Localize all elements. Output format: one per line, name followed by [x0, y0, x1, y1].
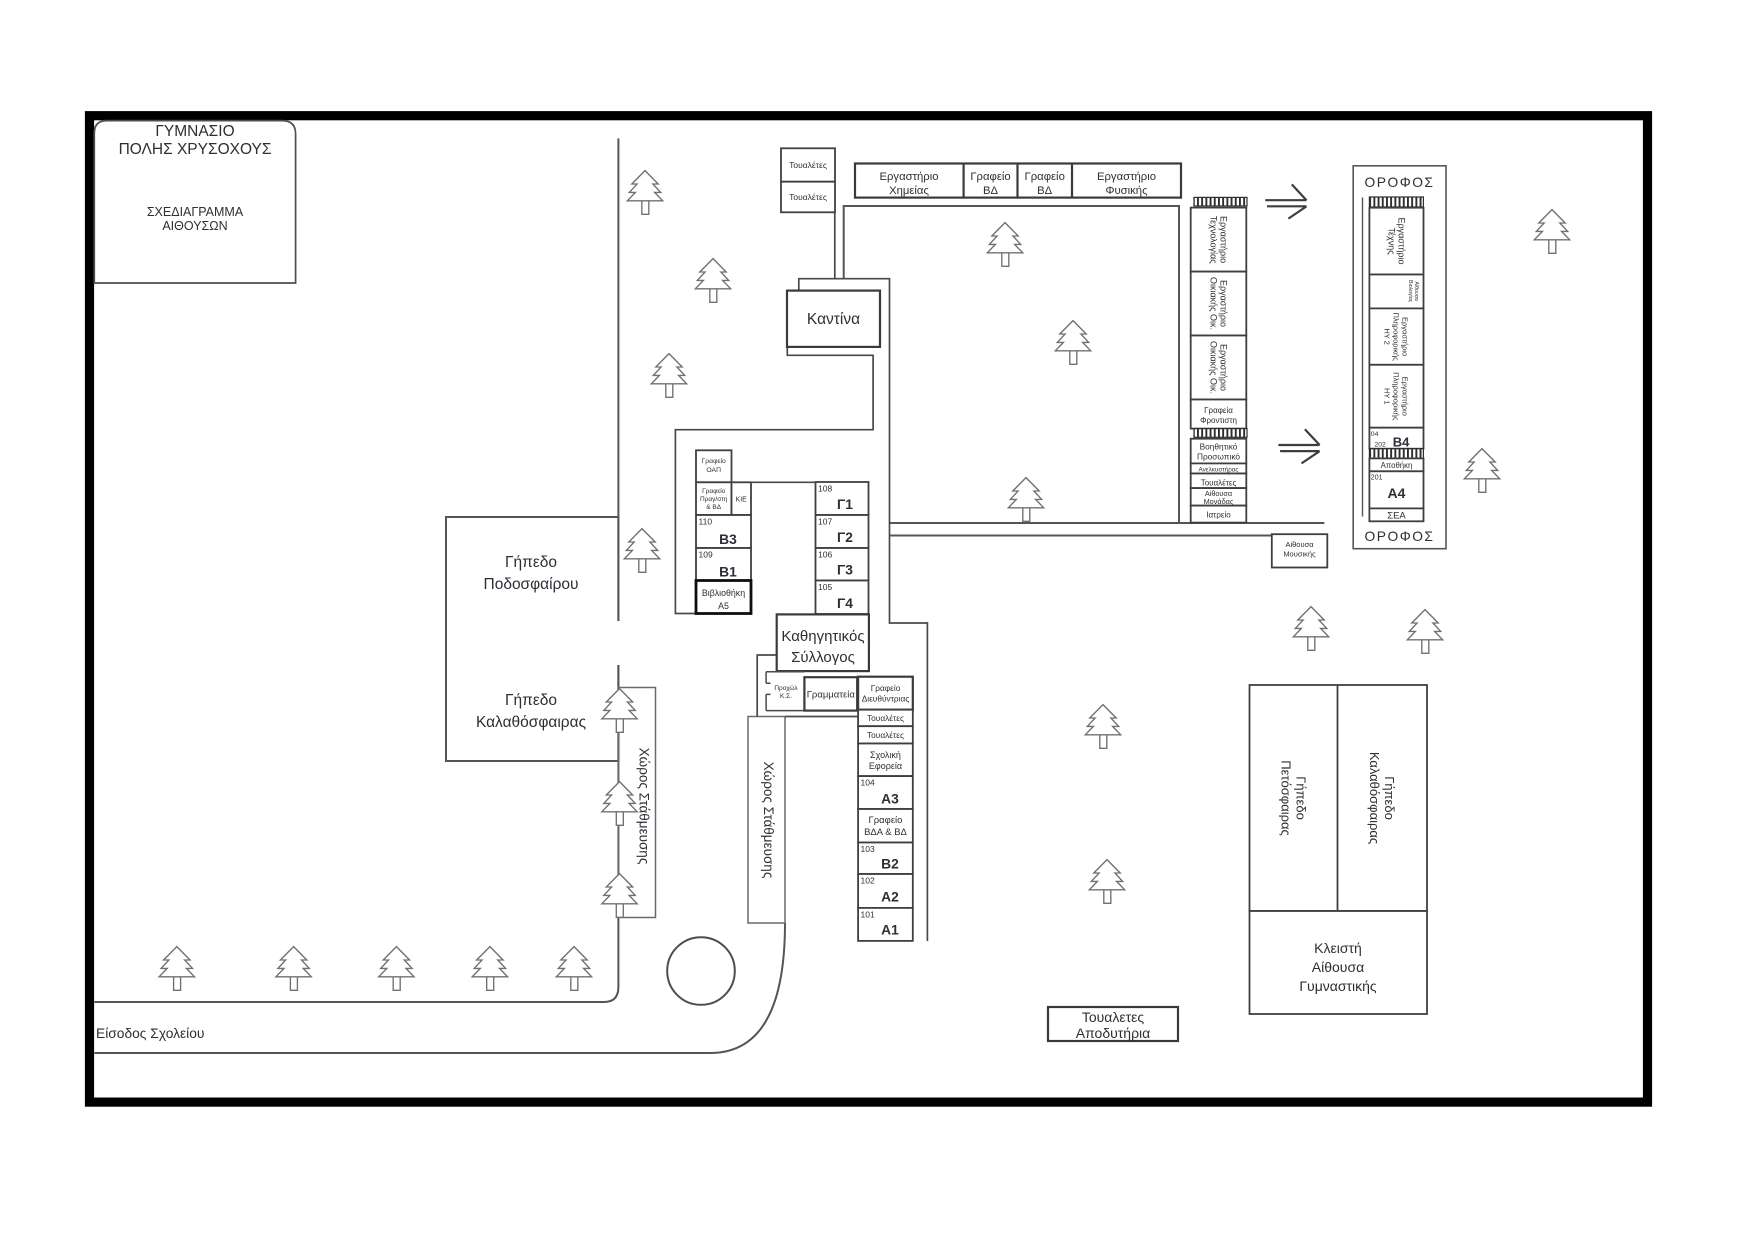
- svg-text:Καλαθόσφαιρας: Καλαθόσφαιρας: [476, 714, 586, 731]
- svg-text:Γραφείο: Γραφείο: [871, 683, 901, 693]
- svg-text:108: 108: [818, 484, 832, 494]
- svg-text:Β1: Β1: [719, 565, 737, 580]
- svg-text:Γραφείο: Γραφείο: [970, 171, 1010, 183]
- svg-text:Αίθουσα: Αίθουσα: [1285, 540, 1314, 549]
- svg-text:ΣΧΕΔΙΑΓΡΑΜΜΑ: ΣΧΕΔΙΑΓΡΑΜΜΑ: [147, 205, 244, 219]
- svg-text:Τουαλετες: Τουαλετες: [1082, 1009, 1145, 1025]
- svg-text:Σχολική: Σχολική: [870, 750, 901, 760]
- svg-text:ΣΕΑ: ΣΕΑ: [1387, 511, 1406, 522]
- svg-text:104: 104: [861, 778, 875, 788]
- svg-text:Γυμναστικής: Γυμναστικής: [1299, 978, 1377, 994]
- svg-text:105: 105: [818, 582, 832, 592]
- svg-text:Γ3: Γ3: [837, 563, 853, 578]
- svg-text:Μονάδας: Μονάδας: [1204, 497, 1234, 506]
- svg-text:ΟΡΟΦΟΣ: ΟΡΟΦΟΣ: [1365, 529, 1435, 544]
- svg-text:Γραμματεία: Γραμματεία: [807, 690, 856, 701]
- svg-text:102: 102: [861, 876, 875, 886]
- svg-text:Χώρος Στάθμευσης: Χώρος Στάθμευσης: [761, 762, 776, 879]
- svg-text:Μουσικής: Μουσικής: [1283, 550, 1316, 559]
- svg-text:Χημείας: Χημείας: [889, 185, 929, 197]
- svg-text:Εφορεία: Εφορεία: [869, 761, 902, 771]
- svg-text:Καντίνα: Καντίνα: [807, 311, 860, 328]
- svg-text:Διευθύντριας: Διευθύντριας: [862, 694, 910, 704]
- svg-text:Φροντιστη: Φροντιστη: [1200, 416, 1237, 425]
- svg-text:110: 110: [699, 517, 713, 527]
- svg-text:Γραφείο: Γραφείο: [869, 815, 903, 826]
- svg-text:ΕργαστήριοΟικιακής Οικ.: ΕργαστήριοΟικιακής Οικ.: [1208, 277, 1228, 330]
- svg-text:Ιατρείο: Ιατρείο: [1206, 511, 1231, 520]
- svg-text:04: 04: [1371, 431, 1379, 438]
- svg-text:ΟΑΠ: ΟΑΠ: [706, 467, 721, 474]
- svg-text:Α3: Α3: [881, 792, 899, 807]
- svg-text:Α2: Α2: [881, 890, 899, 905]
- svg-text:ΠΟΛΗΣ ΧΡΥΣΟΧΟΥΣ: ΠΟΛΗΣ ΧΡΥΣΟΧΟΥΣ: [119, 141, 272, 158]
- svg-text:Γραφείο: Γραφείο: [702, 487, 726, 495]
- svg-text:Τουαλέτες: Τουαλέτες: [867, 713, 904, 723]
- svg-text:Τουαλέτες: Τουαλέτες: [789, 192, 827, 202]
- svg-text:ΚΙΕ: ΚΙΕ: [736, 497, 748, 504]
- svg-text:Σύλλογος: Σύλλογος: [791, 649, 855, 666]
- svg-text:Κ.Σ.: Κ.Σ.: [780, 693, 792, 700]
- svg-text:Γήπεδο: Γήπεδο: [505, 692, 557, 709]
- svg-text:ΒΔ: ΒΔ: [983, 185, 999, 197]
- svg-text:ΒΔ: ΒΔ: [1037, 185, 1053, 197]
- svg-text:ΒΔΑ & ΒΔ: ΒΔΑ & ΒΔ: [864, 827, 907, 838]
- svg-text:Ανελκυστήρας: Ανελκυστήρας: [1199, 467, 1239, 474]
- svg-text:Είσοδος Σχολείου: Είσοδος Σχολείου: [96, 1026, 204, 1041]
- svg-text:ΟΡΟΦΟΣ: ΟΡΟΦΟΣ: [1365, 175, 1435, 190]
- svg-text:109: 109: [699, 550, 713, 560]
- svg-text:Τουαλέτες: Τουαλέτες: [867, 730, 904, 740]
- svg-text:Αποθήκη: Αποθήκη: [1381, 461, 1413, 470]
- svg-text:Γ4: Γ4: [837, 596, 853, 611]
- svg-text:Προχώλ: Προχώλ: [774, 684, 798, 692]
- svg-text:Α5: Α5: [718, 601, 729, 611]
- svg-text:106: 106: [818, 550, 832, 560]
- svg-text:Εργαστήριο: Εργαστήριο: [879, 171, 938, 183]
- svg-text:Αίθουσα: Αίθουσα: [1312, 959, 1364, 975]
- svg-text:Γ1: Γ1: [837, 497, 853, 512]
- svg-text:Γραφείο: Γραφείο: [702, 457, 726, 465]
- svg-text:ΕργαστήριοΤεχνολογίας: ΕργαστήριοΤεχνολογίας: [1208, 216, 1228, 265]
- svg-text:Γήπεδο: Γήπεδο: [505, 554, 557, 571]
- svg-text:Βοηθητικό: Βοηθητικό: [1200, 442, 1238, 452]
- svg-text:ΑΙΘΟΥΣΩΝ: ΑΙΘΟΥΣΩΝ: [162, 219, 227, 233]
- svg-text:Κλειστή: Κλειστή: [1314, 940, 1362, 956]
- svg-text:Πραγ/στη: Πραγ/στη: [700, 496, 728, 503]
- svg-text:107: 107: [818, 517, 832, 527]
- svg-text:Τουαλέτες: Τουαλέτες: [789, 160, 827, 170]
- svg-text:Βιβλιοθήκη: Βιβλιοθήκη: [702, 588, 745, 598]
- svg-text:Τουαλέτες: Τουαλέτες: [1201, 479, 1237, 488]
- svg-text:103: 103: [861, 844, 875, 854]
- svg-text:Αποδυτήρια: Αποδυτήρια: [1076, 1025, 1151, 1041]
- svg-text:Ποδοσφαίρου: Ποδοσφαίρου: [484, 576, 579, 593]
- svg-text:Β4: Β4: [1393, 435, 1410, 450]
- svg-text:Γραφείο: Γραφείο: [1025, 171, 1065, 183]
- svg-text:Γραφεία: Γραφεία: [1204, 406, 1233, 415]
- svg-text:Α1: Α1: [881, 923, 899, 938]
- svg-text:Γ2: Γ2: [837, 530, 853, 545]
- svg-text:Φυσικής: Φυσικής: [1105, 185, 1148, 197]
- svg-text:ΓΥΜΝΑΣΙΟ: ΓΥΜΝΑΣΙΟ: [155, 123, 234, 140]
- svg-text:Β2: Β2: [881, 857, 899, 872]
- svg-text:Α4: Α4: [1388, 485, 1406, 501]
- svg-text:Καθηγητικός: Καθηγητικός: [781, 628, 864, 645]
- svg-text:ΕργαστήριοΟικιακής Οικ.: ΕργαστήριοΟικιακής Οικ.: [1208, 341, 1228, 394]
- svg-text:Προσωπικό: Προσωπικό: [1197, 452, 1240, 462]
- svg-text:ΑίθουσαΒιολογίας: ΑίθουσαΒιολογίας: [1407, 280, 1419, 303]
- svg-text:201: 201: [1371, 475, 1383, 482]
- svg-text:202: 202: [1375, 442, 1387, 449]
- svg-text:Εργαστήριο: Εργαστήριο: [1097, 171, 1156, 183]
- svg-text:101: 101: [861, 910, 875, 920]
- svg-text:Χώρος Στάθμευσης: Χώρος Στάθμευσης: [637, 748, 652, 865]
- svg-text:& ΒΔ: & ΒΔ: [706, 504, 721, 511]
- svg-text:Β3: Β3: [719, 532, 737, 547]
